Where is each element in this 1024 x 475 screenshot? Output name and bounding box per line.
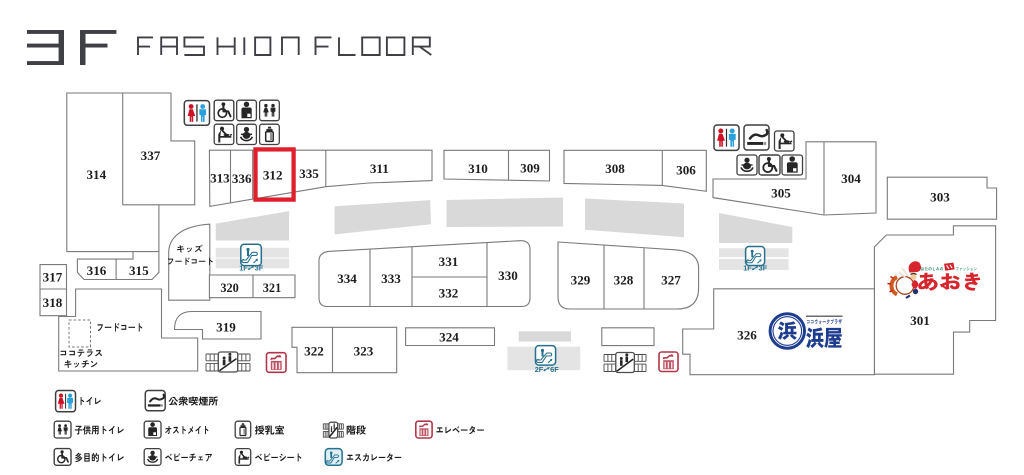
svg-text:2F: 2F [535,365,544,374]
svg-text:319: 319 [216,320,236,335]
svg-text:318: 318 [43,295,63,310]
svg-text:337: 337 [141,148,161,163]
svg-text:315: 315 [129,263,149,278]
svg-text:312: 312 [263,168,283,183]
svg-text:335: 335 [299,166,319,181]
svg-text:313: 313 [210,171,230,186]
svg-text:324: 324 [439,330,459,345]
svg-text:328: 328 [614,273,634,288]
svg-text:310: 310 [468,161,488,176]
svg-text:320: 320 [220,281,238,295]
svg-text:303: 303 [930,190,950,205]
svg-text:321: 321 [263,281,281,295]
svg-text:306: 306 [676,163,696,178]
svg-text:333: 333 [381,271,401,286]
svg-text:305: 305 [771,186,791,201]
svg-text:314: 314 [86,167,106,182]
svg-text:301: 301 [910,313,930,328]
svg-text:331: 331 [439,254,459,269]
svg-text:327: 327 [661,273,681,288]
svg-text:322: 322 [304,344,324,359]
svg-text:304: 304 [841,171,861,186]
svg-text:309: 309 [520,161,540,176]
svg-text:317: 317 [43,270,63,285]
svg-text:336: 336 [232,171,252,186]
svg-text:332: 332 [439,286,459,301]
svg-text:329: 329 [571,273,591,288]
svg-text:316: 316 [87,263,107,278]
svg-text:326: 326 [737,328,757,343]
svg-text:330: 330 [498,268,518,283]
svg-text:334: 334 [337,271,357,286]
svg-text:1F: 1F [239,263,248,272]
svg-text:6F: 6F [550,365,559,374]
svg-text:323: 323 [354,344,374,359]
svg-text:3F: 3F [759,264,768,273]
svg-text:1F: 1F [743,264,752,273]
svg-text:308: 308 [605,161,625,176]
svg-text:311: 311 [370,161,389,176]
svg-text:3F: 3F [255,263,264,272]
